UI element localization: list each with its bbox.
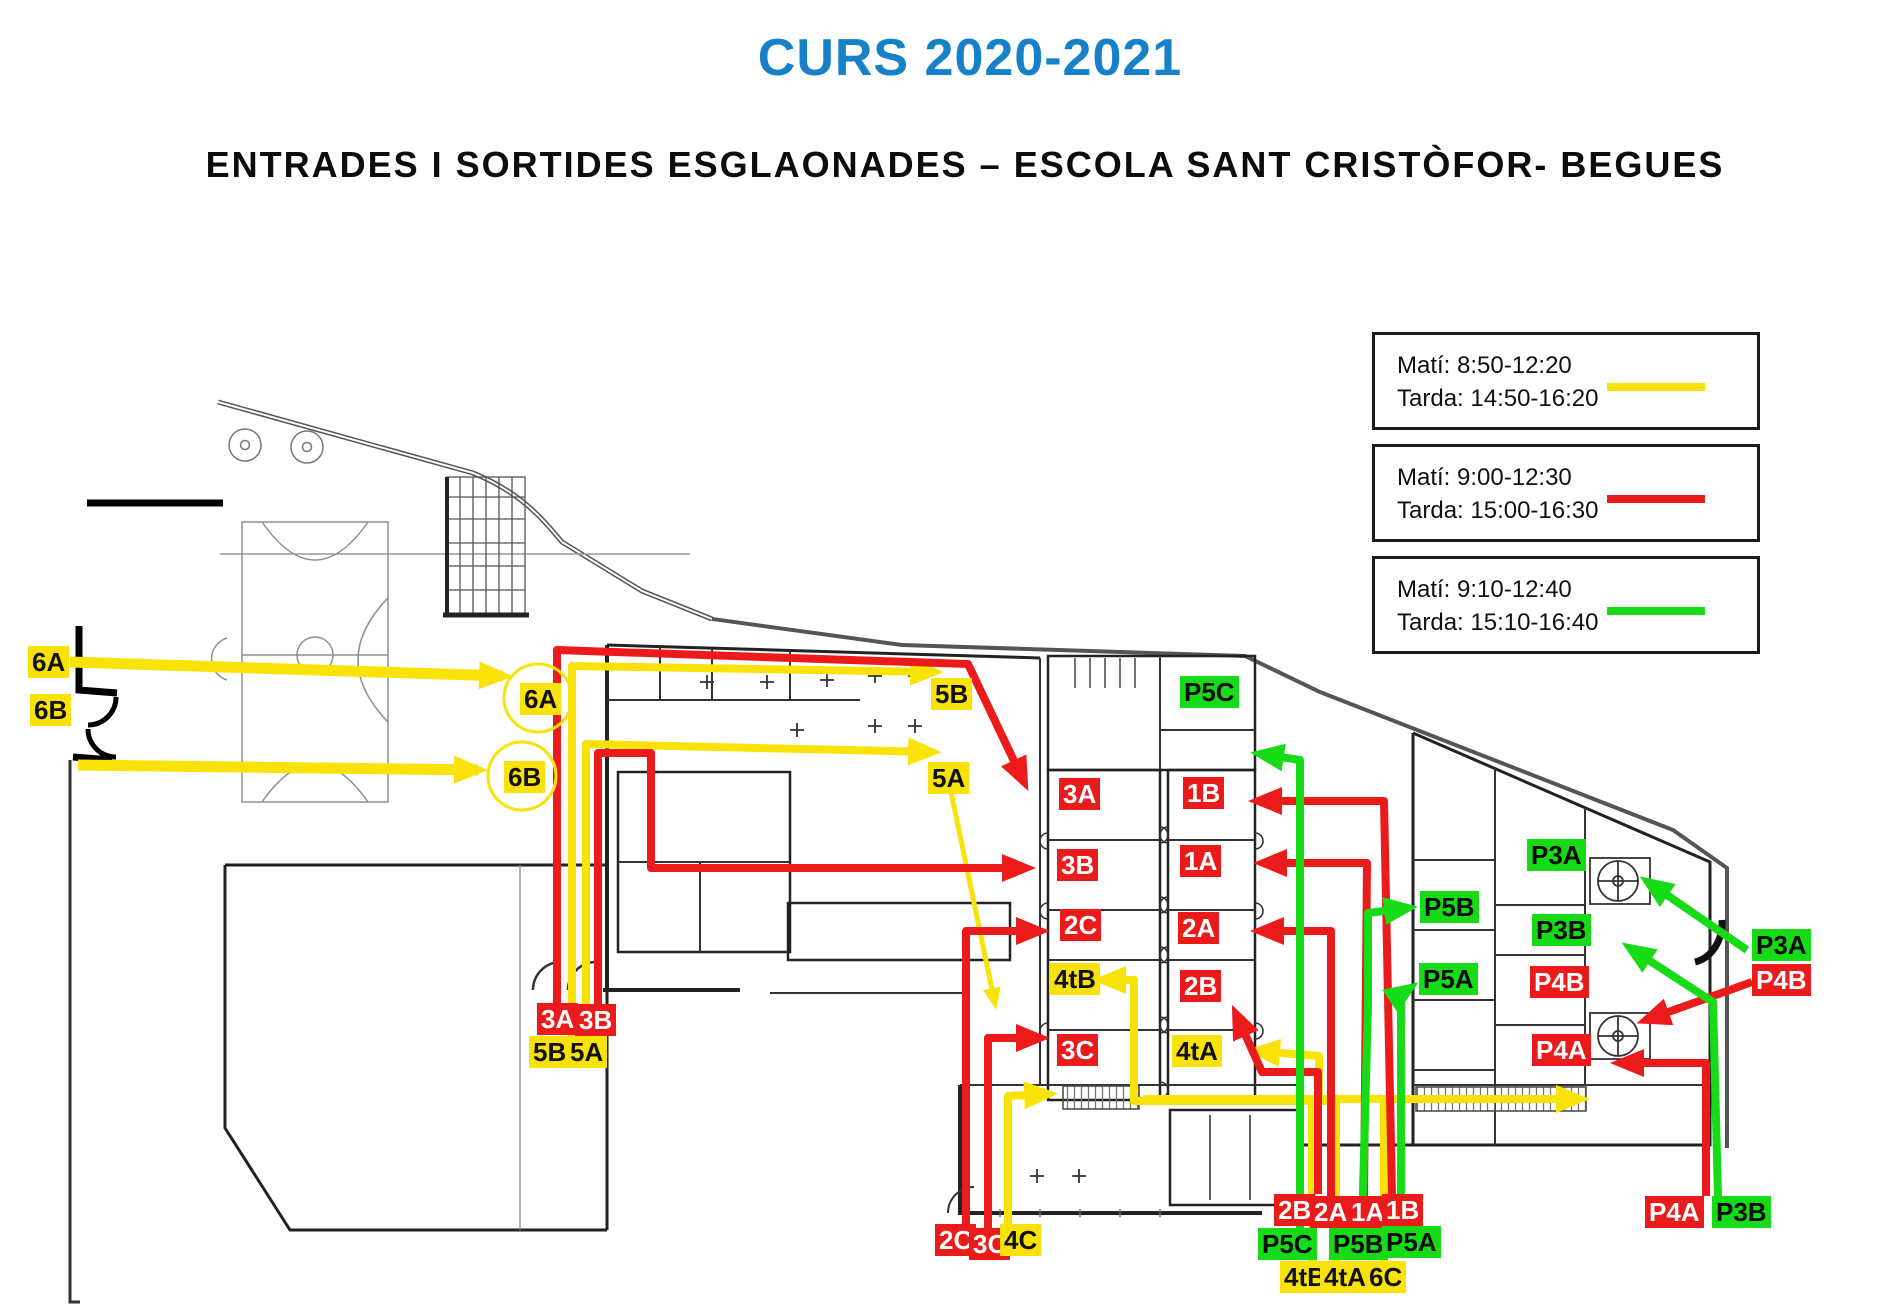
map-label-street-6A: 6A bbox=[28, 646, 69, 678]
map-label-south-2A: 2A bbox=[1310, 1196, 1351, 1228]
map-label-top-5A: 5A bbox=[928, 762, 969, 794]
map-label-room-P5B: P5B bbox=[1420, 891, 1479, 923]
page-subtitle: ENTRADES I SORTIDES ESGLAONADES – ESCOLA… bbox=[200, 144, 1730, 186]
map-label-south-6C: 6C bbox=[1365, 1261, 1406, 1293]
map-label-room-4tA: 4tA bbox=[1172, 1035, 1222, 1067]
map-label-west-3B: 3B bbox=[575, 1004, 616, 1036]
legend-mati-red: Matí: 9:00-12:30 bbox=[1397, 461, 1757, 494]
map-label-room-2B: 2B bbox=[1180, 970, 1221, 1002]
map-label-room-P4A: P4A bbox=[1532, 1034, 1591, 1066]
map-label-room-2A: 2A bbox=[1178, 912, 1219, 944]
route-5B bbox=[572, 666, 934, 1036]
route-P5A bbox=[1401, 988, 1410, 1228]
route-4C bbox=[1008, 1094, 1048, 1224]
map-label-west-5B: 5B bbox=[529, 1036, 570, 1068]
legend-box-red: Matí: 9:00-12:30 Tarda: 15:00-16:30 bbox=[1372, 444, 1760, 542]
map-label-south-4C: 4C bbox=[1000, 1224, 1041, 1256]
map-label-street-6B: 6B bbox=[30, 694, 71, 726]
legend-mati-green: Matí: 9:10-12:40 bbox=[1397, 573, 1757, 606]
map-label-east-P4B: P4B bbox=[1752, 964, 1811, 996]
map-label-room-3C: 3C bbox=[1057, 1034, 1098, 1066]
map-label-south-4tA: 4tA bbox=[1320, 1261, 1370, 1293]
legend-color-bar-yellow bbox=[1607, 383, 1705, 391]
map-label-south-P3B: P3B bbox=[1712, 1196, 1771, 1228]
floor-plan-svg bbox=[0, 0, 1882, 1314]
map-label-south-P5B: P5B bbox=[1329, 1228, 1388, 1260]
route-6B-street bbox=[78, 765, 478, 770]
map-label-room-P3B: P3B bbox=[1532, 914, 1591, 946]
route-P4B bbox=[1646, 982, 1752, 1020]
map-label-room-1A: 1A bbox=[1180, 845, 1221, 877]
map-label-south-P5A: P5A bbox=[1382, 1226, 1441, 1258]
route-5A-patio bbox=[951, 792, 995, 1004]
entry-exit-plan-page: CURS 2020-2021 ENTRADES I SORTIDES ESGLA… bbox=[0, 0, 1882, 1314]
route-2C bbox=[966, 931, 1040, 1224]
map-label-west-5A: 5A bbox=[566, 1036, 607, 1068]
map-label-room-P5C: P5C bbox=[1180, 676, 1239, 708]
map-label-room-P4B: P4B bbox=[1530, 966, 1589, 998]
map-label-east-P3A: P3A bbox=[1752, 929, 1811, 961]
map-label-room-3B: 3B bbox=[1057, 849, 1098, 881]
route-P4A bbox=[1620, 1063, 1706, 1196]
map-label-room-P3A: P3A bbox=[1527, 839, 1586, 871]
map-label-room-2C: 2C bbox=[1060, 909, 1101, 941]
map-label-south-P5C: P5C bbox=[1258, 1228, 1317, 1260]
map-label-room-4tB: 4tB bbox=[1050, 963, 1100, 995]
map-label-west-3A: 3A bbox=[537, 1003, 578, 1035]
legend-box-green: Matí: 9:10-12:40 Tarda: 15:10-16:40 bbox=[1372, 556, 1760, 654]
route-3C bbox=[988, 1038, 1040, 1229]
route-P5C bbox=[1260, 754, 1300, 1228]
legend-box-yellow: Matí: 8:50-12:20 Tarda: 14:50-16:20 bbox=[1372, 332, 1760, 430]
map-label-top-5B: 5B bbox=[931, 678, 972, 710]
map-label-south-P4A: P4A bbox=[1645, 1196, 1704, 1228]
route-6A-street bbox=[70, 662, 503, 676]
entry-circle-label-6B: 6B bbox=[504, 761, 545, 793]
route-P3A bbox=[1648, 882, 1747, 950]
map-label-south-1B: 1B bbox=[1382, 1194, 1423, 1226]
legend-color-bar-red bbox=[1607, 495, 1705, 503]
map-label-room-3A: 3A bbox=[1059, 778, 1100, 810]
entry-circle-label-6A: 6A bbox=[520, 683, 561, 715]
legend-color-bar-green bbox=[1607, 607, 1705, 615]
page-title: CURS 2020-2021 bbox=[700, 28, 1240, 88]
map-label-room-P5A: P5A bbox=[1419, 963, 1478, 995]
legend-mati-yellow: Matí: 8:50-12:20 bbox=[1397, 349, 1757, 382]
map-label-room-1B: 1B bbox=[1183, 777, 1224, 809]
